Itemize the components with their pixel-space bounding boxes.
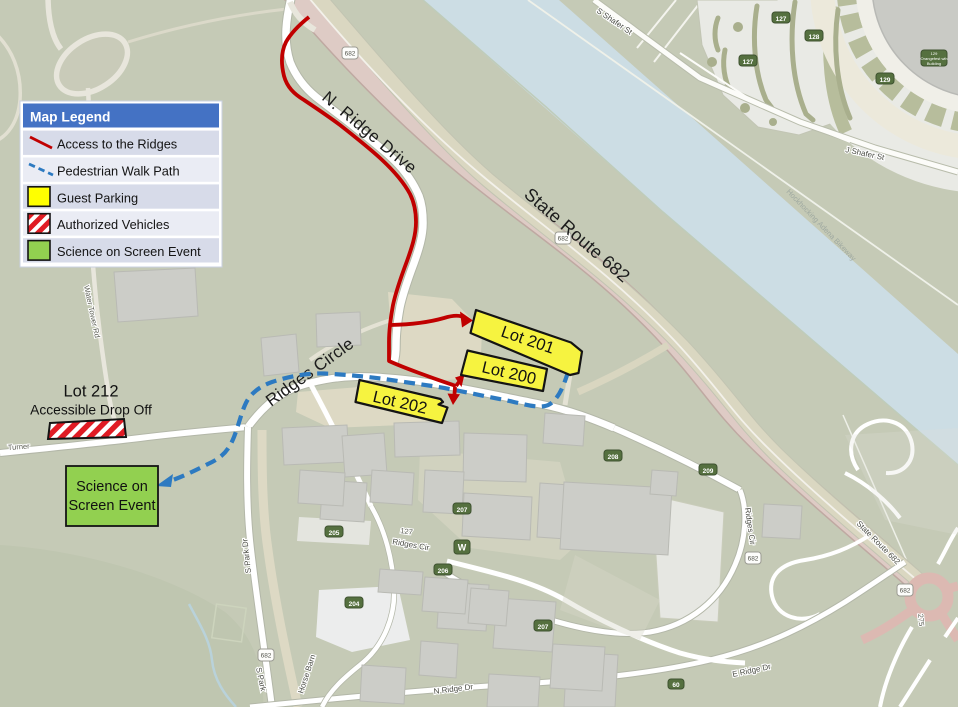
svg-text:60: 60 xyxy=(672,682,680,689)
svg-text:129: 129 xyxy=(880,77,891,84)
svg-text:127: 127 xyxy=(400,526,414,537)
svg-text:127: 127 xyxy=(776,16,787,23)
svg-text:682: 682 xyxy=(261,653,272,660)
svg-text:Screen Event: Screen Event xyxy=(68,498,155,514)
svg-text:Authorized Vehicles: Authorized Vehicles xyxy=(57,217,169,232)
svg-text:682: 682 xyxy=(900,588,911,595)
svg-text:206: 206 xyxy=(438,568,449,575)
svg-text:Science on Screen Event: Science on Screen Event xyxy=(57,244,201,259)
svg-text:207: 207 xyxy=(457,507,468,514)
svg-text:682: 682 xyxy=(748,556,759,563)
svg-text:Accessible Drop Off: Accessible Drop Off xyxy=(30,403,152,418)
svg-text:Turner: Turner xyxy=(8,441,31,452)
svg-text:207: 207 xyxy=(538,624,549,631)
svg-text:Lot 212: Lot 212 xyxy=(63,383,118,401)
svg-text:209: 209 xyxy=(703,468,714,475)
svg-text:Building: Building xyxy=(927,61,941,66)
svg-text:128: 128 xyxy=(809,34,820,41)
svg-text:W: W xyxy=(458,543,467,553)
svg-text:Access to the Ridges: Access to the Ridges xyxy=(57,137,177,152)
svg-text:205: 205 xyxy=(329,530,340,537)
svg-text:275: 275 xyxy=(916,613,926,626)
svg-text:Guest Parking: Guest Parking xyxy=(57,190,138,205)
svg-text:208: 208 xyxy=(608,454,619,461)
svg-text:Science on: Science on xyxy=(76,479,148,495)
svg-text:204: 204 xyxy=(349,601,360,608)
svg-text:Map Legend: Map Legend xyxy=(30,110,110,125)
svg-text:Pedestrian Walk Path: Pedestrian Walk Path xyxy=(57,163,180,178)
svg-text:127: 127 xyxy=(743,59,754,66)
svg-text:682: 682 xyxy=(345,51,356,58)
